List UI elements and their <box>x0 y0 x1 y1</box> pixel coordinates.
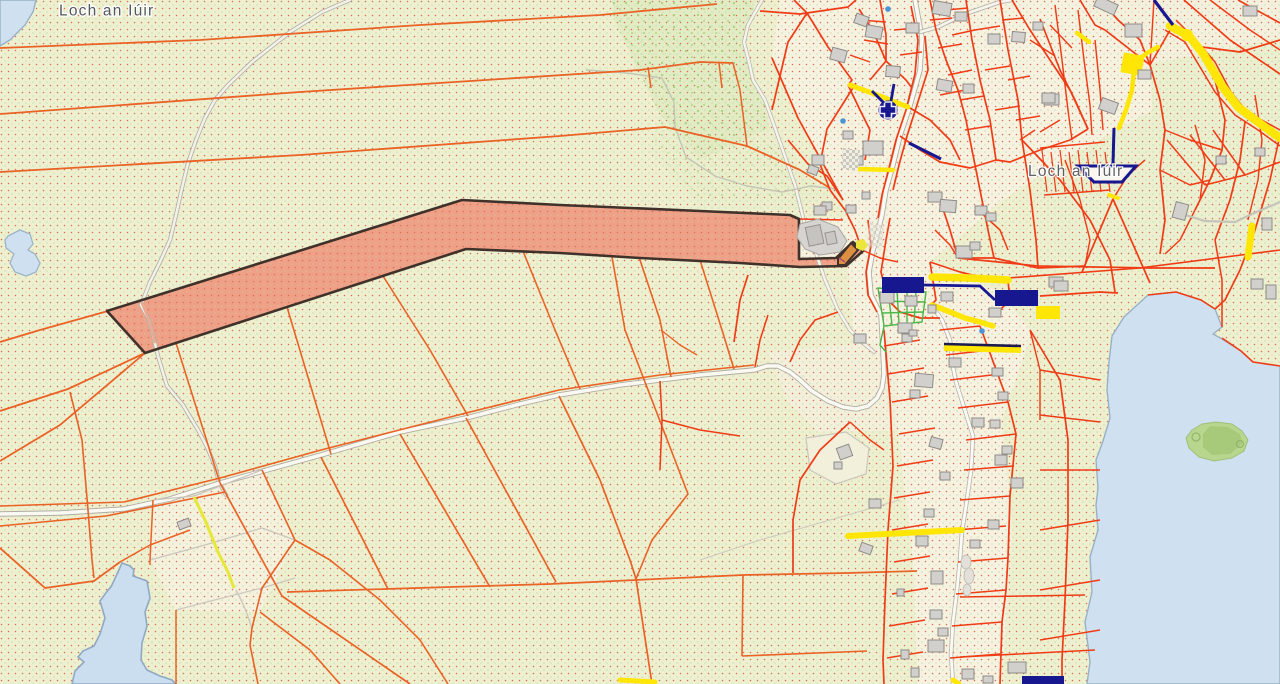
svg-text:Loch an Iúir: Loch an Iúir <box>59 3 154 20</box>
svg-text:Loch an Iúir: Loch an Iúir <box>1028 163 1123 180</box>
